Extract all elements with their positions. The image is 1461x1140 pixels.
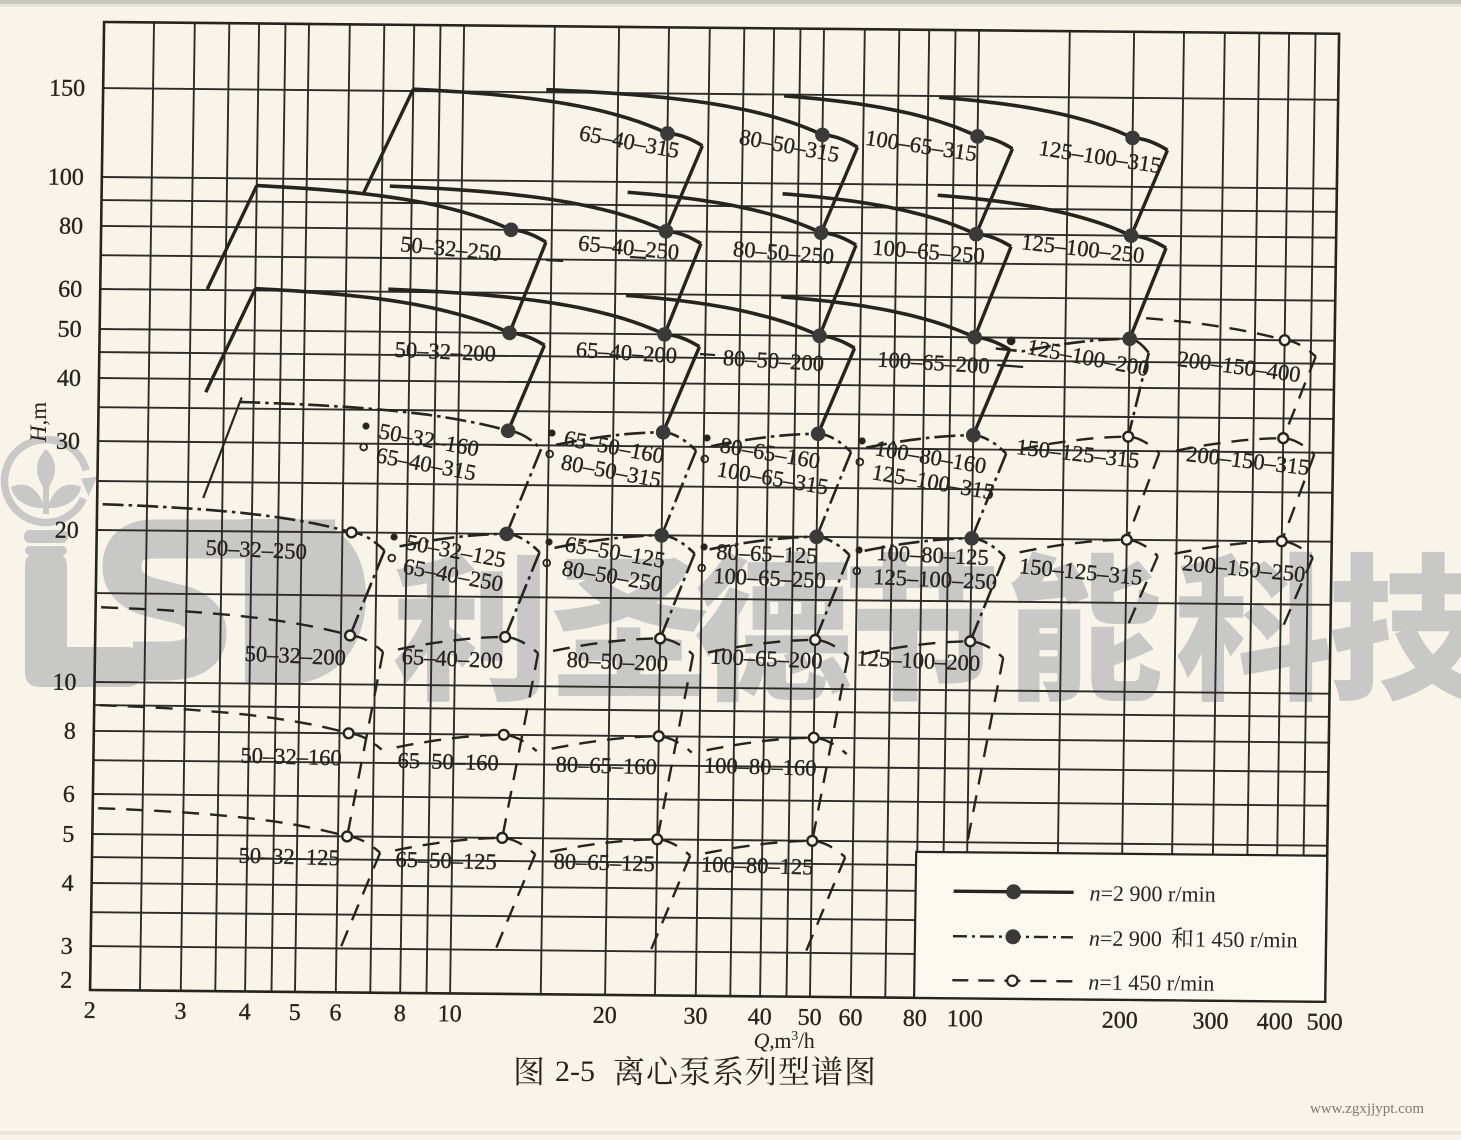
svg-text:65–40–200: 65–40–200 — [401, 644, 503, 673]
svg-text:4: 4 — [61, 871, 73, 897]
svg-text:3: 3 — [174, 999, 186, 1025]
svg-text:100: 100 — [947, 1006, 983, 1032]
svg-text:Q,m3/h: Q,m3/h — [754, 1028, 815, 1053]
svg-text:n=2 900 r/min: n=2 900 r/min — [1089, 880, 1215, 906]
svg-text:50–32–250: 50–32–250 — [205, 535, 307, 564]
svg-text:80: 80 — [59, 214, 83, 240]
svg-text:2: 2 — [84, 998, 96, 1024]
svg-text:H,m: H,m — [26, 402, 51, 443]
svg-text:50: 50 — [57, 317, 81, 343]
svg-text:n=2 900: n=2 900 — [1089, 925, 1162, 951]
svg-text:50–32–160: 50–32–160 — [240, 743, 342, 771]
svg-text:100–65–200: 100–65–200 — [710, 643, 824, 673]
svg-text:100–65–250: 100–65–250 — [713, 563, 827, 593]
svg-text:www.zgxjjypt.com: www.zgxjjypt.com — [1310, 1101, 1424, 1117]
svg-text:30: 30 — [683, 1004, 707, 1030]
svg-text:6: 6 — [329, 1000, 341, 1026]
svg-text:200: 200 — [1102, 1008, 1138, 1034]
svg-text:50–32–200: 50–32–200 — [244, 641, 346, 670]
svg-text:50–32–125: 50–32–125 — [238, 843, 340, 871]
svg-text:80–65–160: 80–65–160 — [555, 752, 657, 780]
svg-text:300: 300 — [1192, 1008, 1228, 1034]
svg-text:10: 10 — [52, 670, 76, 696]
svg-text:400: 400 — [1257, 1009, 1293, 1035]
svg-text:60: 60 — [58, 277, 82, 303]
svg-text:8: 8 — [64, 719, 76, 745]
svg-text:10: 10 — [438, 1001, 462, 1027]
svg-text:65–50–125: 65–50–125 — [395, 847, 497, 875]
svg-text:3: 3 — [61, 934, 73, 960]
svg-text:4: 4 — [239, 999, 251, 1025]
svg-text:60: 60 — [838, 1005, 862, 1031]
svg-text:80–50–200: 80–50–200 — [566, 647, 668, 676]
svg-text:2: 2 — [60, 968, 72, 994]
svg-text:n=1 450 r/min: n=1 450 r/min — [1088, 969, 1214, 995]
svg-text:50–32–200: 50–32–200 — [394, 337, 496, 366]
svg-text:500: 500 — [1306, 1010, 1342, 1036]
svg-text:6: 6 — [63, 782, 75, 808]
svg-text:1 450 r/min: 1 450 r/min — [1195, 926, 1298, 952]
svg-text:80–65–125: 80–65–125 — [553, 849, 655, 877]
svg-text:40: 40 — [57, 366, 81, 392]
svg-text:80: 80 — [903, 1006, 927, 1032]
svg-text:100–80–160: 100–80–160 — [704, 753, 817, 781]
svg-text:20: 20 — [593, 1003, 617, 1029]
svg-text:150: 150 — [49, 76, 85, 102]
svg-text:30: 30 — [56, 429, 80, 455]
svg-text:2-5: 2-5 — [555, 1055, 595, 1088]
svg-text:40: 40 — [748, 1004, 772, 1030]
svg-text:100–80–125: 100–80–125 — [701, 852, 814, 880]
svg-text:5: 5 — [288, 1000, 300, 1026]
svg-text:5: 5 — [62, 822, 74, 848]
svg-text:65–50–160: 65–50–160 — [397, 748, 499, 776]
svg-text:20: 20 — [55, 518, 79, 544]
svg-text:8: 8 — [394, 1001, 406, 1027]
svg-text:100: 100 — [48, 164, 84, 190]
